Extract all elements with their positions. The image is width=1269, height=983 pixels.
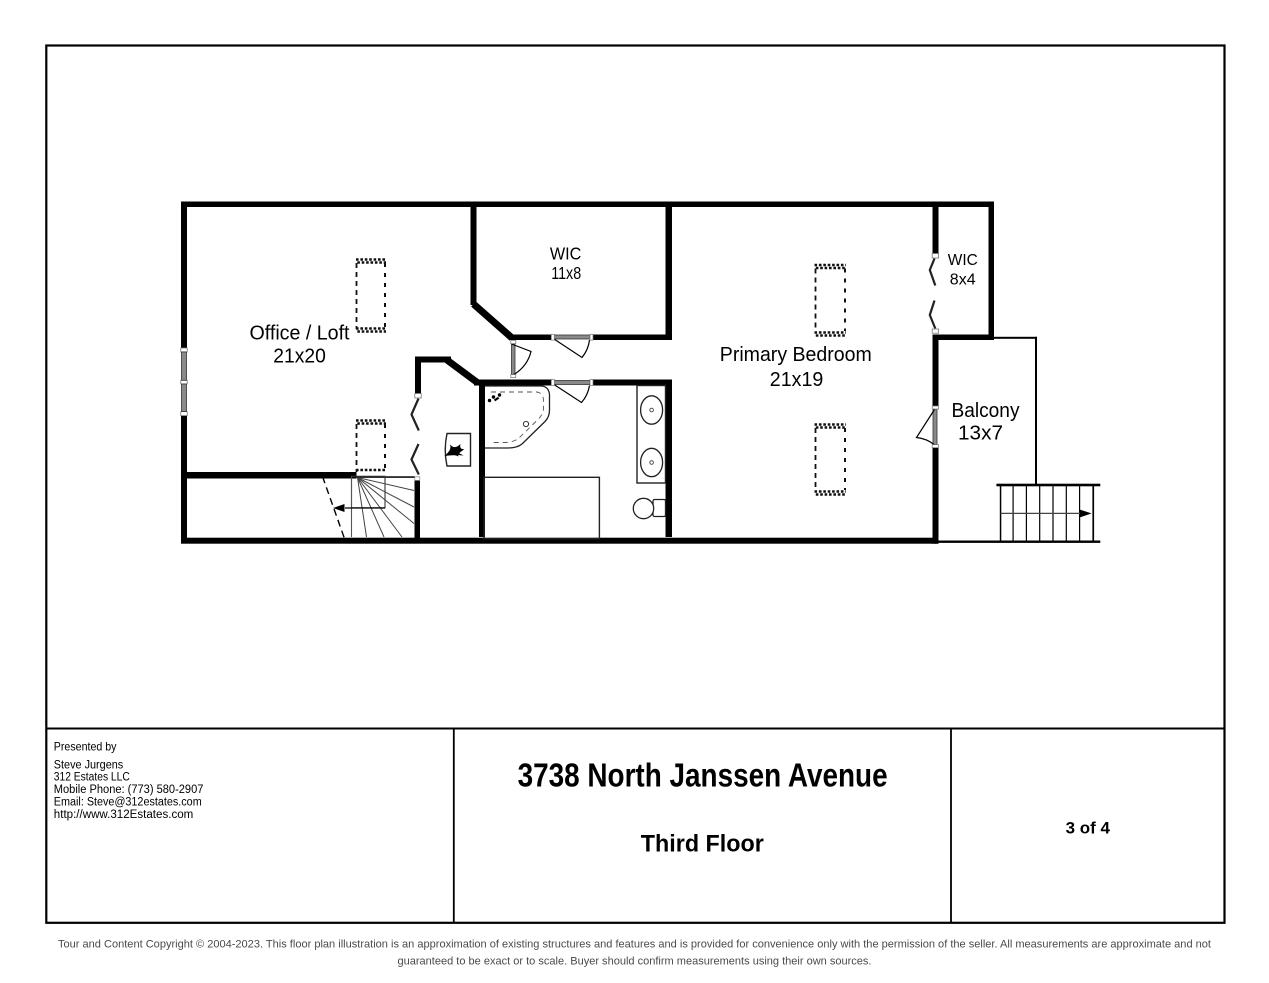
svg-text:Steve Jurgens: Steve Jurgens — [54, 760, 124, 772]
svg-text:312 Estates LLC: 312 Estates LLC — [54, 771, 130, 783]
svg-text:11x8: 11x8 — [551, 263, 581, 283]
svg-text:Mobile Phone: (773) 580-2907: Mobile Phone: (773) 580-2907 — [54, 784, 204, 796]
svg-text:WIC: WIC — [550, 244, 582, 264]
svg-text:Primary Bedroom: Primary Bedroom — [720, 343, 872, 366]
svg-text:Balcony: Balcony — [952, 400, 1020, 422]
svg-text:21x19: 21x19 — [770, 368, 824, 391]
svg-text:21x20: 21x20 — [273, 345, 326, 368]
svg-text:3 of 4: 3 of 4 — [1066, 819, 1111, 838]
svg-text:Presented by: Presented by — [54, 740, 117, 754]
svg-text:WIC: WIC — [948, 252, 978, 269]
svg-text:Tour and Content Copyright © 2: Tour and Content Copyright © 2004-2023. … — [58, 939, 1212, 951]
svg-text:guaranteed to be exact or to s: guaranteed to be exact or to scale. Buye… — [398, 955, 872, 967]
svg-text:3738 North Janssen Avenue: 3738 North Janssen Avenue — [518, 757, 888, 794]
svg-text:8x4: 8x4 — [950, 271, 976, 288]
svg-text:13x7: 13x7 — [958, 423, 1003, 445]
svg-text:Email: Steve@312estates.com: Email: Steve@312estates.com — [54, 796, 202, 808]
svg-text:Office / Loft: Office / Loft — [250, 322, 350, 345]
svg-text:http://www.312Estates.com: http://www.312Estates.com — [54, 809, 194, 821]
svg-text:Third Floor: Third Floor — [641, 830, 764, 857]
